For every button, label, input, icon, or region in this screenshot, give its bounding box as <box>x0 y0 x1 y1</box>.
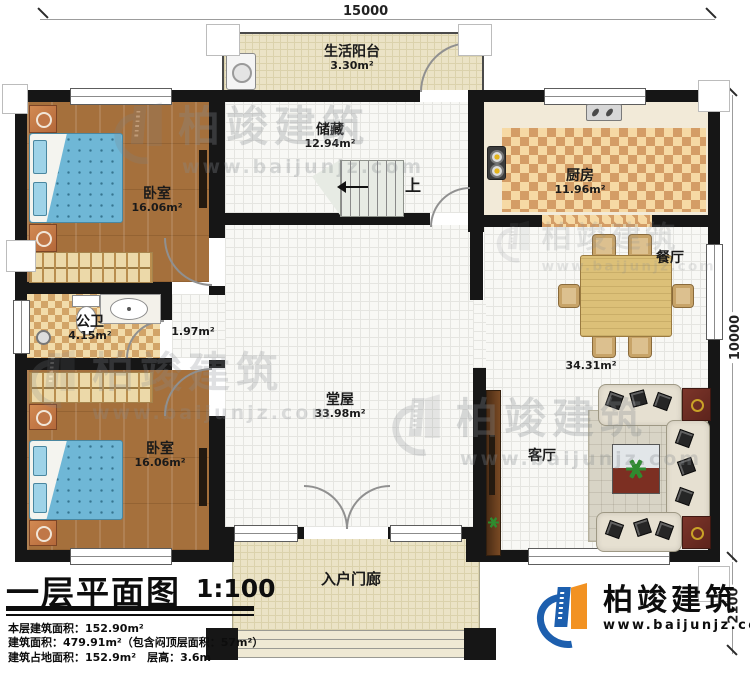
kitchen-sink-icon <box>586 104 622 121</box>
watermark: 柏竣建筑 www.baijunjz.com <box>112 100 424 178</box>
dim-line-top <box>40 19 715 20</box>
dining-living-area-label: 34.31m² <box>558 360 624 373</box>
pillow <box>33 483 47 513</box>
watermark-logo-icon <box>29 349 81 398</box>
plant-icon <box>488 517 499 528</box>
window <box>234 525 298 542</box>
window <box>390 525 462 542</box>
pillow <box>33 140 47 174</box>
watermark: 柏竣建筑 www.baijunjz.com <box>26 346 334 424</box>
dim-depth: 10000 <box>728 312 743 363</box>
washing-machine-icon <box>226 53 256 90</box>
watermark-logo-icon <box>113 101 168 152</box>
brand-logo: 柏竣建筑 www.baijunjz.com <box>536 582 750 636</box>
room-area: 3.30m² <box>330 60 373 73</box>
watermark-logo-icon <box>391 393 446 444</box>
dining-chair <box>558 284 580 308</box>
brand-name: 柏竣建筑 <box>603 586 739 616</box>
porch-steps <box>236 630 474 658</box>
nightstand <box>29 105 57 133</box>
stat-line: 建筑占地面积：152.9m² 层高：3.6m <box>8 649 211 665</box>
brand-logo-icon <box>536 582 594 636</box>
watermark-logo-icon <box>496 220 534 255</box>
stairs-up-label: 上 <box>400 177 426 195</box>
bathroom-label: 公卫 4.15m² <box>50 314 130 343</box>
watermark: 柏竣建筑 www.baijunjz.com <box>390 392 702 470</box>
porch-label: 入户门廊 <box>308 571 394 588</box>
balcony-label: 生活阳台 3.30m² <box>292 44 412 73</box>
dim-width: 15000 <box>340 4 391 19</box>
room-name: 生活阳台 <box>324 44 380 60</box>
sofa <box>596 512 682 552</box>
floor-drain-icon <box>36 330 51 345</box>
opening-floor-patch <box>473 300 486 368</box>
floor-plan-canvas: 生活阳台 3.30m² 储藏 12.94m² 厨房 11.96m² 卧室 16.… <box>0 0 750 673</box>
wardrobe <box>29 252 153 283</box>
window <box>70 548 172 565</box>
watermark: 柏竣建筑 www.baijunjz.com <box>494 218 716 274</box>
stat-line: 建筑面积：479.91m²（包含闷顶层面积：57m²） <box>8 634 263 650</box>
pillow <box>33 446 47 476</box>
window <box>544 88 646 105</box>
corridor-label: 1.97m² <box>165 326 221 339</box>
plan-scale: 1:100 <box>196 574 276 603</box>
brand-url: www.baijunjz.com <box>603 618 750 633</box>
stove-icon <box>487 146 506 180</box>
kitchen-label: 厨房 11.96m² <box>535 168 625 197</box>
dining-chair <box>672 284 694 308</box>
pillow <box>33 182 47 216</box>
stairs-direction-arrow <box>346 186 368 188</box>
bedroom2-label: 卧室 16.06m² <box>100 441 220 470</box>
nightstand <box>29 520 57 546</box>
dining-chair <box>592 334 616 358</box>
dining-chair <box>628 334 652 358</box>
side-table <box>682 516 711 549</box>
bedroom1-label: 卧室 16.06m² <box>97 186 217 215</box>
